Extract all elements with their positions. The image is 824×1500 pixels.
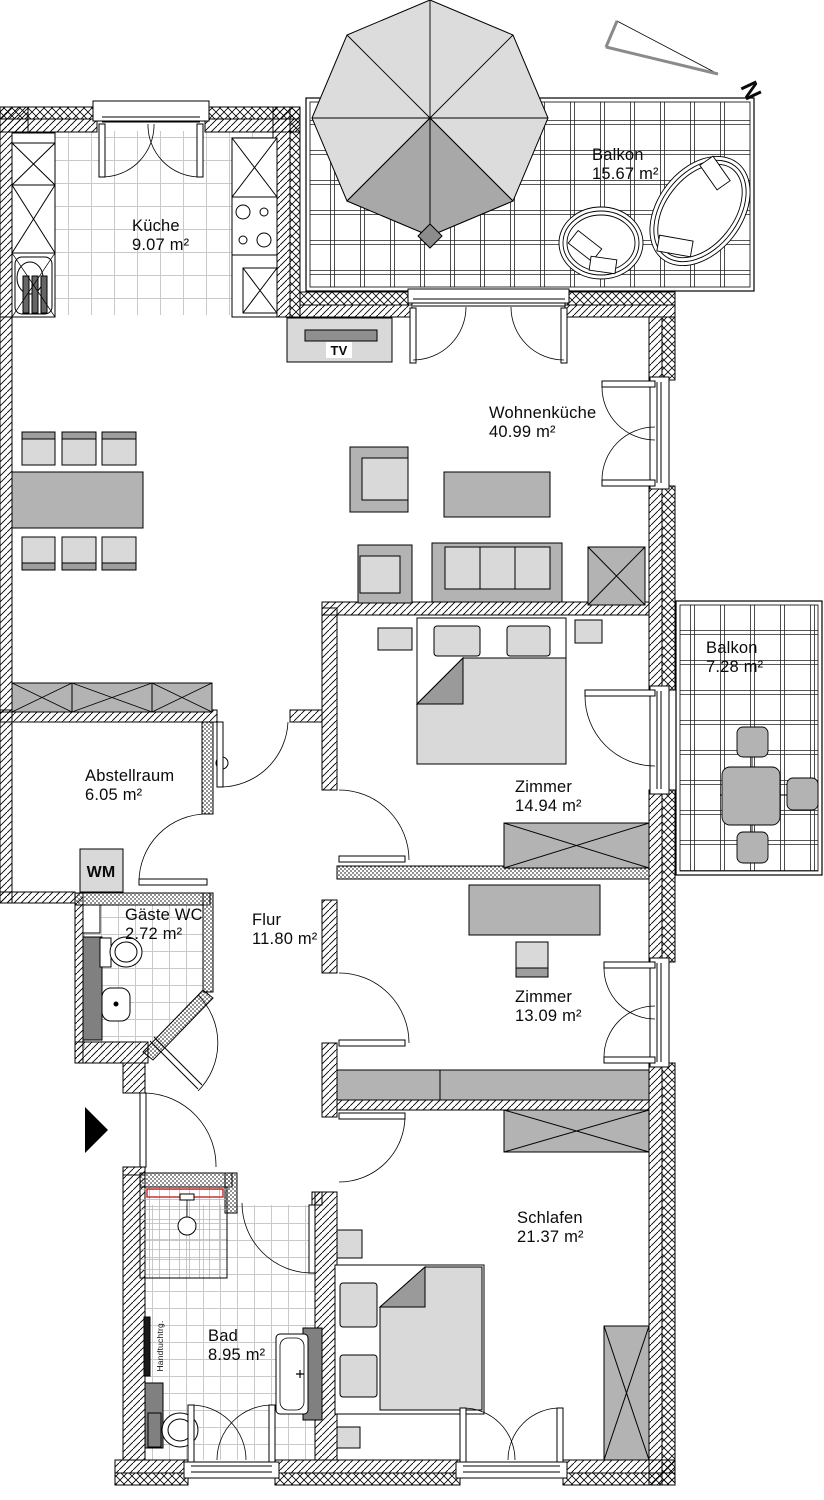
nightstand	[337, 1230, 362, 1258]
entrance-arrow-icon	[85, 1107, 108, 1153]
towel-radiator	[144, 1317, 150, 1376]
wc-shaft	[83, 905, 100, 933]
desk-chair	[516, 942, 548, 977]
wardrobe-zimmer1	[504, 823, 649, 868]
svg-text:13.09 m²: 13.09 m²	[515, 1007, 582, 1025]
label-abstellraum: Abstellraum 6.05 m²	[85, 767, 174, 804]
wardrobe-schlafen-side	[604, 1326, 649, 1460]
entrance-door	[140, 1093, 216, 1167]
svg-text:7.28 m²: 7.28 m²	[706, 658, 764, 676]
door-schlafen	[339, 1113, 405, 1182]
compass-needle-icon	[606, 21, 718, 74]
coffee-table	[444, 472, 550, 517]
svg-text:Abstellraum: Abstellraum	[85, 767, 174, 785]
armchair-1	[350, 447, 408, 512]
lounger-small	[559, 207, 643, 279]
wm-label: WM	[87, 864, 116, 881]
svg-text:11.80 m²: 11.80 m²	[252, 930, 318, 948]
side-table-crossed	[588, 547, 645, 605]
towel-rail-label: Handtuchtrg.	[155, 1320, 165, 1371]
wardrobe-schlafen-top	[504, 1110, 649, 1152]
svg-text:Wohnenküche: Wohnenküche	[489, 404, 596, 422]
sideboard-zimmer2	[337, 1070, 649, 1100]
svg-text:21.37 m²: 21.37 m²	[517, 1228, 584, 1246]
nightstand	[378, 628, 412, 650]
balcony-door-living	[408, 289, 569, 363]
balcony-table	[722, 767, 780, 825]
balcony-door-wohnkueche	[602, 377, 669, 489]
label-balkon-klein: Balkon 7.28 m²	[706, 639, 764, 676]
svg-text:Balkon: Balkon	[592, 146, 644, 164]
svg-text:Zimmer: Zimmer	[515, 988, 572, 1006]
french-door-schlafen	[456, 1408, 567, 1478]
svg-text:Flur: Flur	[252, 911, 282, 929]
door-abstellraum	[139, 814, 207, 885]
label-zimmer1: Zimmer 14.94 m²	[515, 778, 582, 815]
compass: N	[606, 21, 766, 104]
label-zimmer2: Zimmer 13.09 m²	[515, 988, 582, 1025]
svg-text:Balkon: Balkon	[706, 639, 758, 657]
balcony-chair-top	[737, 727, 768, 757]
door-zimmer1	[339, 790, 409, 862]
sink-wc	[102, 988, 130, 1021]
armchair-2	[358, 545, 412, 603]
svg-text:8.95 m²: 8.95 m²	[208, 1346, 266, 1364]
svg-text:Küche: Küche	[132, 217, 180, 235]
nightstand	[337, 1427, 360, 1448]
schlafen-furniture	[335, 1110, 649, 1460]
nightstand	[575, 620, 602, 643]
svg-text:Gäste WC: Gäste WC	[125, 906, 203, 924]
balcony-chair-right	[787, 778, 818, 810]
label-wohnkueche: Wohnenküche 40.99 m²	[489, 404, 596, 441]
balcony-door-zimmer1	[585, 686, 669, 794]
svg-text:2.72 m²: 2.72 m²	[125, 925, 183, 943]
floor-plan-canvas: N Küche 9.07 m² Balkon 15.67 m² Wohnenkü…	[0, 0, 824, 1500]
svg-text:40.99 m²: 40.99 m²	[489, 423, 556, 441]
sideboard-living	[12, 683, 212, 712]
svg-text:Schlafen: Schlafen	[517, 1209, 583, 1227]
svg-text:15.67 m²: 15.67 m²	[592, 165, 659, 183]
floor-plan: N Küche 9.07 m² Balkon 15.67 m² Wohnenkü…	[0, 0, 824, 1500]
balcony-door-zimmer2	[604, 958, 669, 1067]
svg-text:9.07 m²: 9.07 m²	[132, 236, 190, 254]
zimmer1-furniture	[378, 618, 649, 868]
wc-counter	[83, 937, 102, 1040]
svg-text:6.05 m²: 6.05 m²	[85, 786, 143, 804]
dining-set	[12, 432, 143, 570]
balcony-chair-bottom	[737, 832, 768, 863]
door-flur	[217, 722, 288, 787]
svg-text:Bad: Bad	[208, 1327, 238, 1345]
door-zimmer2	[339, 973, 409, 1046]
bed-zimmer1	[417, 618, 566, 764]
dining-table	[12, 472, 143, 528]
bed-schlafen	[335, 1265, 484, 1414]
desk	[469, 885, 600, 935]
stove-icon	[232, 197, 277, 255]
label-schlafen: Schlafen 21.37 m²	[517, 1209, 584, 1246]
zimmer2-furniture	[337, 885, 649, 1100]
shower	[140, 1187, 227, 1278]
label-flur: Flur 11.80 m²	[252, 911, 318, 948]
svg-text:Zimmer: Zimmer	[515, 778, 572, 796]
svg-text:14.94 m²: 14.94 m²	[515, 797, 582, 815]
bathtub	[276, 1328, 322, 1420]
sofa	[432, 543, 562, 602]
tv-label: TV	[330, 343, 347, 358]
